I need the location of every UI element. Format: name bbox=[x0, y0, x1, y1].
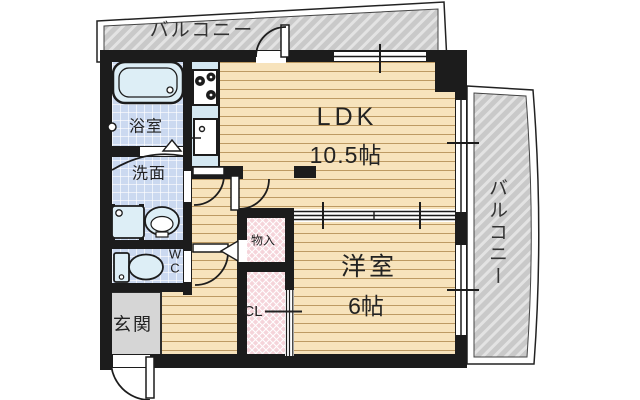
western-room-label: 洋室 bbox=[341, 254, 397, 280]
floor-plan: バルコニー バルコニー LDK 10.5帖 洋室 6帖 浴室 洗面 W C 玄関… bbox=[0, 0, 640, 400]
floor-plan-drawing bbox=[0, 0, 640, 400]
wc-label: W C bbox=[169, 247, 181, 274]
balcony-right-label: バルコニー bbox=[486, 178, 506, 288]
washing-machine-icon bbox=[110, 204, 144, 240]
bathtub-icon bbox=[113, 62, 183, 103]
balcony-top-label: バルコニー bbox=[150, 21, 255, 41]
closet-label: CL bbox=[243, 304, 262, 320]
storage-label: 物入 bbox=[251, 235, 275, 248]
entrance-label: 玄関 bbox=[113, 316, 153, 335]
ldk-size-label: 10.5帖 bbox=[310, 143, 383, 167]
wc-label-line2: C bbox=[169, 261, 181, 275]
bathroom-label: 浴室 bbox=[129, 120, 163, 137]
western-room-size-label: 6帖 bbox=[348, 294, 384, 318]
washroom-label: 洗面 bbox=[132, 167, 166, 184]
stove-icon bbox=[193, 70, 217, 105]
toilet-icon bbox=[114, 253, 163, 282]
wc-label-line1: W bbox=[169, 247, 181, 261]
ldk-label: LDK bbox=[317, 104, 378, 130]
